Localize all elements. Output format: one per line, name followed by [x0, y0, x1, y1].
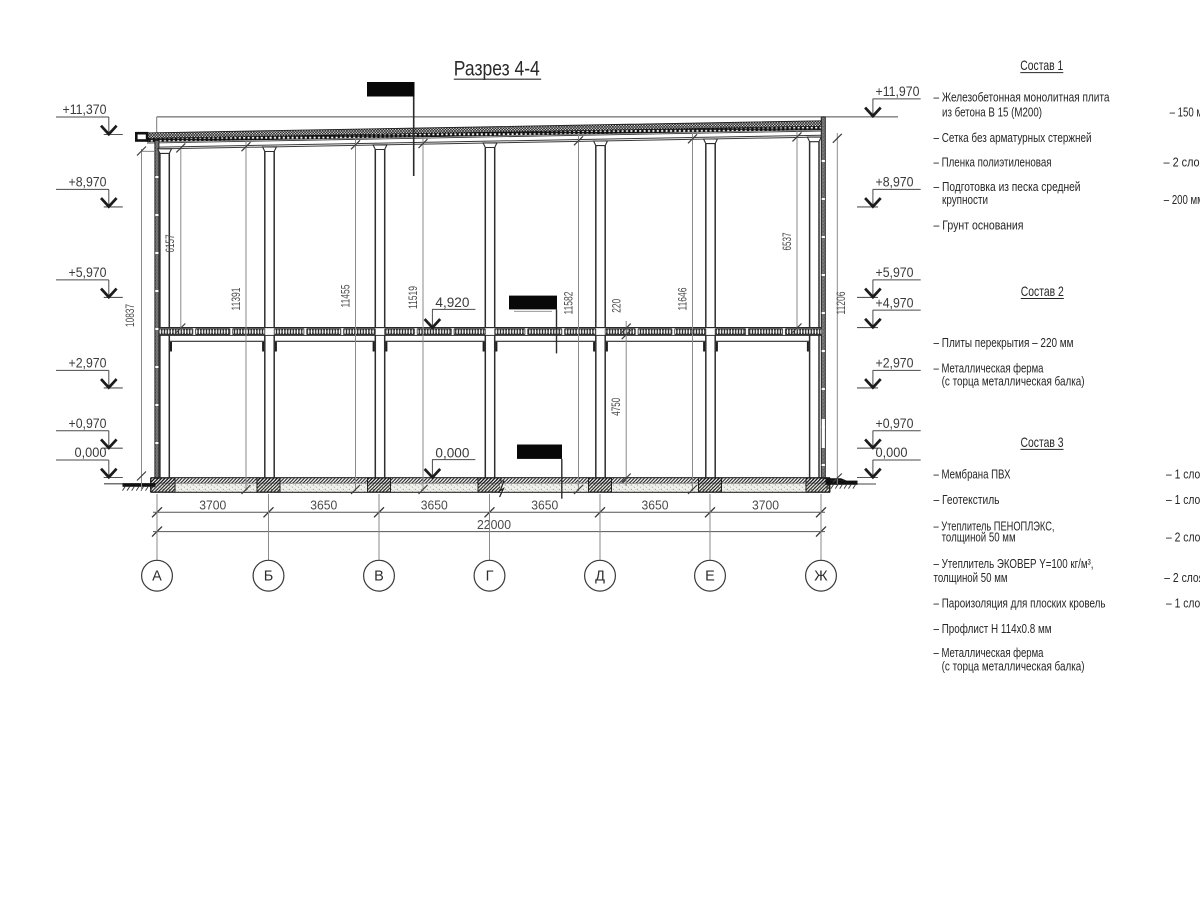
svg-text:– Профлист Н 114х0.8 мм: – Профлист Н 114х0.8 мм — [934, 621, 1052, 636]
svg-text:Разрез 4-4: Разрез 4-4 — [454, 58, 540, 81]
svg-text:6537: 6537 — [780, 232, 794, 250]
svg-text:Б: Б — [264, 569, 274, 585]
svg-text:11582: 11582 — [562, 291, 576, 314]
svg-text:толщиной 50 мм: толщиной 50 мм — [934, 570, 1008, 585]
svg-text:4750: 4750 — [609, 398, 623, 416]
svg-text:+2,970: +2,970 — [876, 356, 914, 372]
svg-text:11646: 11646 — [676, 287, 690, 310]
svg-text:+5,970: +5,970 — [69, 265, 107, 281]
svg-text:(с торца металлическая балка): (с торца металлическая балка) — [942, 374, 1085, 389]
svg-text:– Плиты перекрытия – 220 мм: – Плиты перекрытия – 220 мм — [934, 335, 1074, 350]
svg-text:– Сетка без арматурных стержне: – Сетка без арматурных стержней — [934, 130, 1092, 145]
svg-text:11391: 11391 — [229, 287, 243, 310]
svg-text:11206: 11206 — [834, 291, 848, 314]
svg-text:+8,970: +8,970 — [69, 175, 107, 191]
svg-text:– 150 мм: – 150 мм — [1170, 105, 1200, 120]
svg-text:+5,970: +5,970 — [876, 265, 914, 281]
svg-text:3700: 3700 — [752, 497, 779, 512]
svg-text:11519: 11519 — [406, 286, 420, 309]
svg-text:– Железобетонная монолитная п: – Железобетонная монолитная плита — [934, 89, 1111, 104]
svg-text:из бетона В 15 (М200): из бетона В 15 (М200) — [942, 105, 1042, 120]
svg-text:– Утеплитель ЭКОВЕР Y=100 кг/м: – Утеплитель ЭКОВЕР Y=100 кг/м³, — [934, 556, 1094, 571]
svg-text:В: В — [374, 569, 384, 585]
svg-text:– Пароизоляция для плоских кро: – Пароизоляция для плоских кровель — [934, 596, 1106, 611]
svg-text:+4,970: +4,970 — [876, 295, 914, 311]
svg-text:– Мембрана ПВХ: – Мембрана ПВХ — [934, 467, 1011, 482]
svg-text:11455: 11455 — [339, 284, 353, 307]
svg-text:22000: 22000 — [477, 517, 511, 532]
svg-text:3650: 3650 — [531, 497, 558, 512]
svg-text:+11,370: +11,370 — [63, 102, 107, 118]
svg-text:– 2 слоя: – 2 слоя — [1166, 530, 1200, 545]
svg-text:0,000: 0,000 — [876, 445, 908, 461]
svg-text:Состав 1: Состав 1 — [1020, 58, 1063, 73]
svg-text:220: 220 — [609, 299, 623, 313]
svg-text:– Геотекстиль: – Геотекстиль — [934, 492, 1000, 507]
svg-text:Состав 3: Состав 3 — [1021, 435, 1064, 450]
svg-text:+2,970: +2,970 — [69, 356, 107, 372]
svg-text:0,000: 0,000 — [75, 445, 107, 461]
svg-text:– 1 слой: – 1 слой — [1166, 492, 1200, 507]
svg-text:толщиной 50 мм: толщиной 50 мм — [942, 530, 1016, 545]
svg-text:0,000: 0,000 — [435, 445, 469, 461]
svg-text:(с торца металлическая балка): (с торца металлическая балка) — [942, 659, 1085, 674]
svg-text:– Грунт основания: – Грунт основания — [934, 218, 1024, 233]
svg-text:А: А — [152, 569, 162, 585]
svg-text:+0,970: +0,970 — [69, 416, 107, 432]
svg-text:3650: 3650 — [421, 497, 448, 512]
svg-text:+11,970: +11,970 — [876, 84, 920, 100]
svg-text:Г: Г — [486, 569, 494, 585]
svg-text:3650: 3650 — [310, 497, 337, 512]
svg-text:– 1 слой: – 1 слой — [1166, 596, 1200, 611]
svg-text:крупности: крупности — [942, 192, 988, 207]
svg-text:– 2 слоя: – 2 слоя — [1164, 155, 1200, 170]
svg-text:– 2 слоя: – 2 слоя — [1164, 570, 1200, 585]
svg-text:Ж: Ж — [814, 569, 828, 585]
svg-text:6157: 6157 — [163, 234, 177, 252]
svg-text:+0,970: +0,970 — [876, 416, 914, 432]
svg-text:3650: 3650 — [642, 497, 669, 512]
svg-text:Е: Е — [705, 569, 715, 585]
svg-text:– Пленка полиэтиленовая: – Пленка полиэтиленовая — [934, 155, 1052, 170]
svg-text:Д: Д — [595, 569, 605, 585]
svg-text:– 200 мм: – 200 мм — [1164, 192, 1200, 207]
svg-text:3700: 3700 — [199, 497, 226, 512]
svg-text:4,920: 4,920 — [435, 295, 469, 311]
svg-text:– 1 слой: – 1 слой — [1166, 467, 1200, 482]
svg-text:Состав 2: Состав 2 — [1021, 284, 1064, 299]
svg-text:+8,970: +8,970 — [876, 175, 914, 191]
svg-text:10837: 10837 — [123, 304, 137, 327]
